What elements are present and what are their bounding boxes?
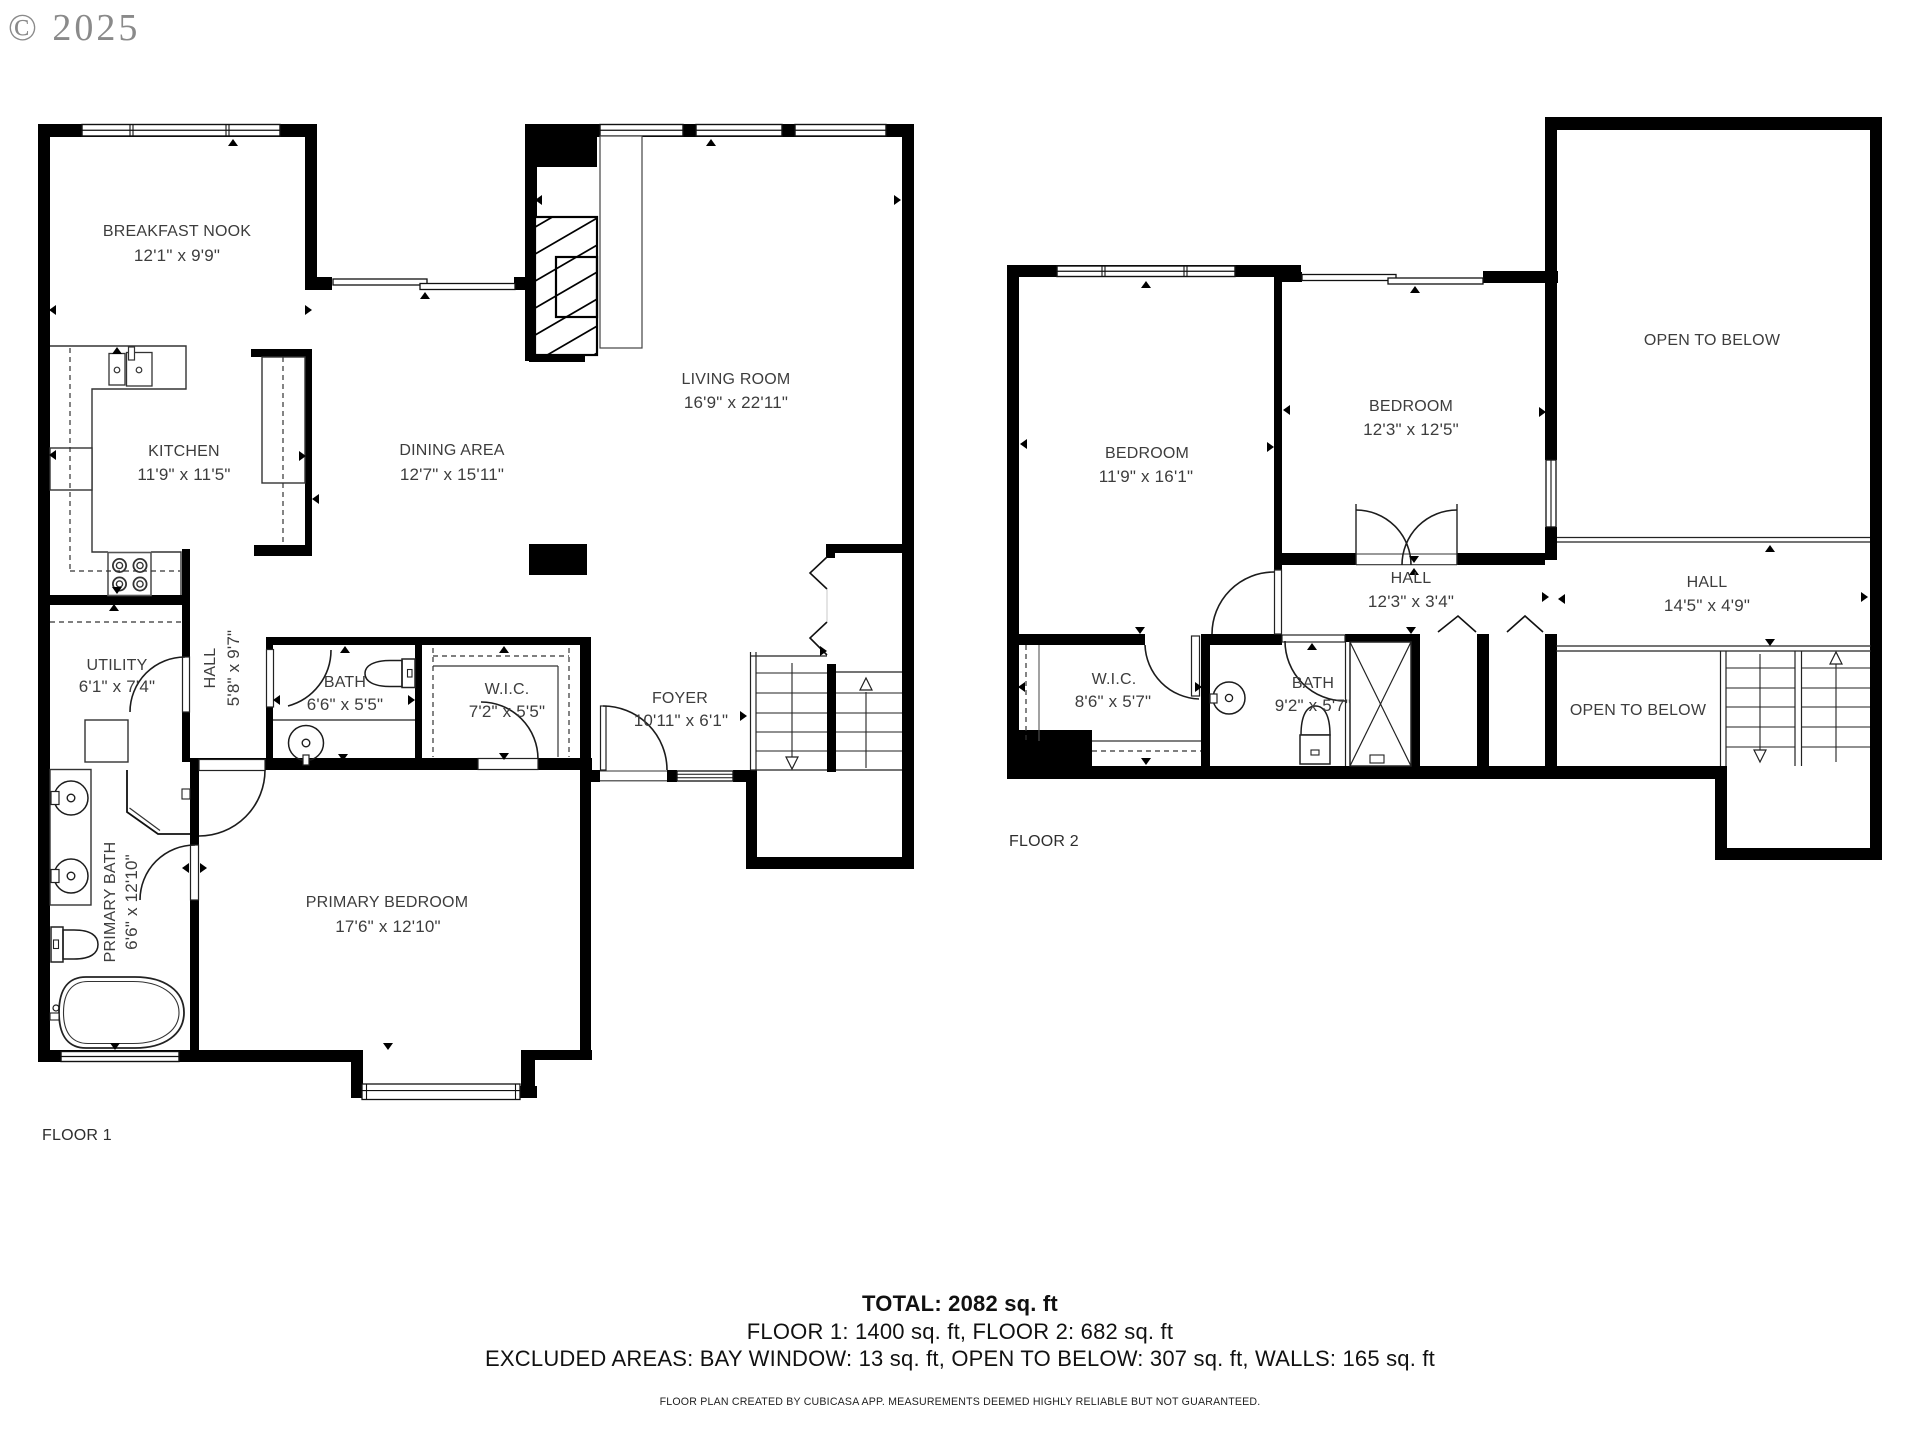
svg-text:OPEN TO BELOW: OPEN TO BELOW: [1570, 702, 1707, 719]
svg-text:BATH: BATH: [1292, 675, 1334, 692]
svg-text:12'1" x 9'9": 12'1" x 9'9": [134, 246, 220, 265]
svg-text:HALL: HALL: [202, 648, 219, 689]
svg-text:© 2025: © 2025: [8, 7, 140, 49]
svg-text:FLOOR PLAN CREATED BY CUBICASA: FLOOR PLAN CREATED BY CUBICASA APP. MEAS…: [660, 1396, 1261, 1408]
svg-text:12'3" x 3'4": 12'3" x 3'4": [1368, 592, 1454, 611]
svg-text:17'6" x 12'10": 17'6" x 12'10": [335, 917, 441, 936]
svg-text:UTILITY: UTILITY: [87, 657, 148, 674]
svg-text:FLOOR 2: FLOOR 2: [1009, 833, 1079, 850]
svg-text:HALL: HALL: [1687, 574, 1728, 591]
svg-text:8'6" x 5'7": 8'6" x 5'7": [1075, 692, 1152, 711]
svg-text:6'6" x 5'5": 6'6" x 5'5": [307, 695, 384, 714]
svg-text:HALL: HALL: [1391, 570, 1432, 587]
svg-text:KITCHEN: KITCHEN: [148, 443, 220, 460]
svg-text:6'6" x 12'10": 6'6" x 12'10": [122, 854, 141, 950]
svg-text:12'7" x 15'11": 12'7" x 15'11": [400, 465, 504, 484]
svg-text:16'9" x 22'11": 16'9" x 22'11": [684, 393, 788, 412]
svg-text:BATH: BATH: [324, 674, 366, 691]
svg-text:BREAKFAST NOOK: BREAKFAST NOOK: [103, 223, 251, 240]
svg-text:PRIMARY BATH: PRIMARY BATH: [102, 842, 119, 963]
svg-text:FLOOR 1: 1400 sq. ft, FLOOR 2:: FLOOR 1: 1400 sq. ft, FLOOR 2: 682 sq. f…: [747, 1319, 1173, 1344]
svg-text:FOYER: FOYER: [652, 690, 708, 707]
svg-text:14'5" x 4'9": 14'5" x 4'9": [1664, 596, 1750, 615]
svg-text:OPEN TO BELOW: OPEN TO BELOW: [1644, 332, 1781, 349]
svg-text:W.I.C.: W.I.C.: [1092, 671, 1137, 688]
svg-text:5'8" x 9'7": 5'8" x 9'7": [224, 630, 243, 707]
svg-text:12'3" x 12'5": 12'3" x 12'5": [1363, 420, 1459, 439]
svg-text:7'2" x 5'5": 7'2" x 5'5": [469, 702, 546, 721]
svg-text:11'9" x 11'5": 11'9" x 11'5": [137, 465, 230, 484]
svg-text:DINING AREA: DINING AREA: [399, 442, 504, 459]
svg-text:BEDROOM: BEDROOM: [1369, 398, 1453, 415]
svg-text:11'9" x 16'1": 11'9" x 16'1": [1099, 467, 1194, 486]
svg-text:9'2" x 5'7": 9'2" x 5'7": [1275, 696, 1352, 715]
svg-text:6'1" x 7'4": 6'1" x 7'4": [79, 677, 156, 696]
svg-text:EXCLUDED AREAS: BAY WINDOW: 13: EXCLUDED AREAS: BAY WINDOW: 13 sq. ft, O…: [485, 1346, 1435, 1371]
svg-text:PRIMARY BEDROOM: PRIMARY BEDROOM: [306, 894, 468, 911]
svg-text:TOTAL: 2082 sq. ft: TOTAL: 2082 sq. ft: [862, 1291, 1058, 1316]
svg-text:10'11" x 6'1": 10'11" x 6'1": [634, 711, 729, 730]
svg-text:FLOOR 1: FLOOR 1: [42, 1127, 112, 1144]
svg-text:W.I.C.: W.I.C.: [485, 681, 530, 698]
svg-text:BEDROOM: BEDROOM: [1105, 445, 1189, 462]
svg-text:LIVING ROOM: LIVING ROOM: [682, 371, 791, 388]
